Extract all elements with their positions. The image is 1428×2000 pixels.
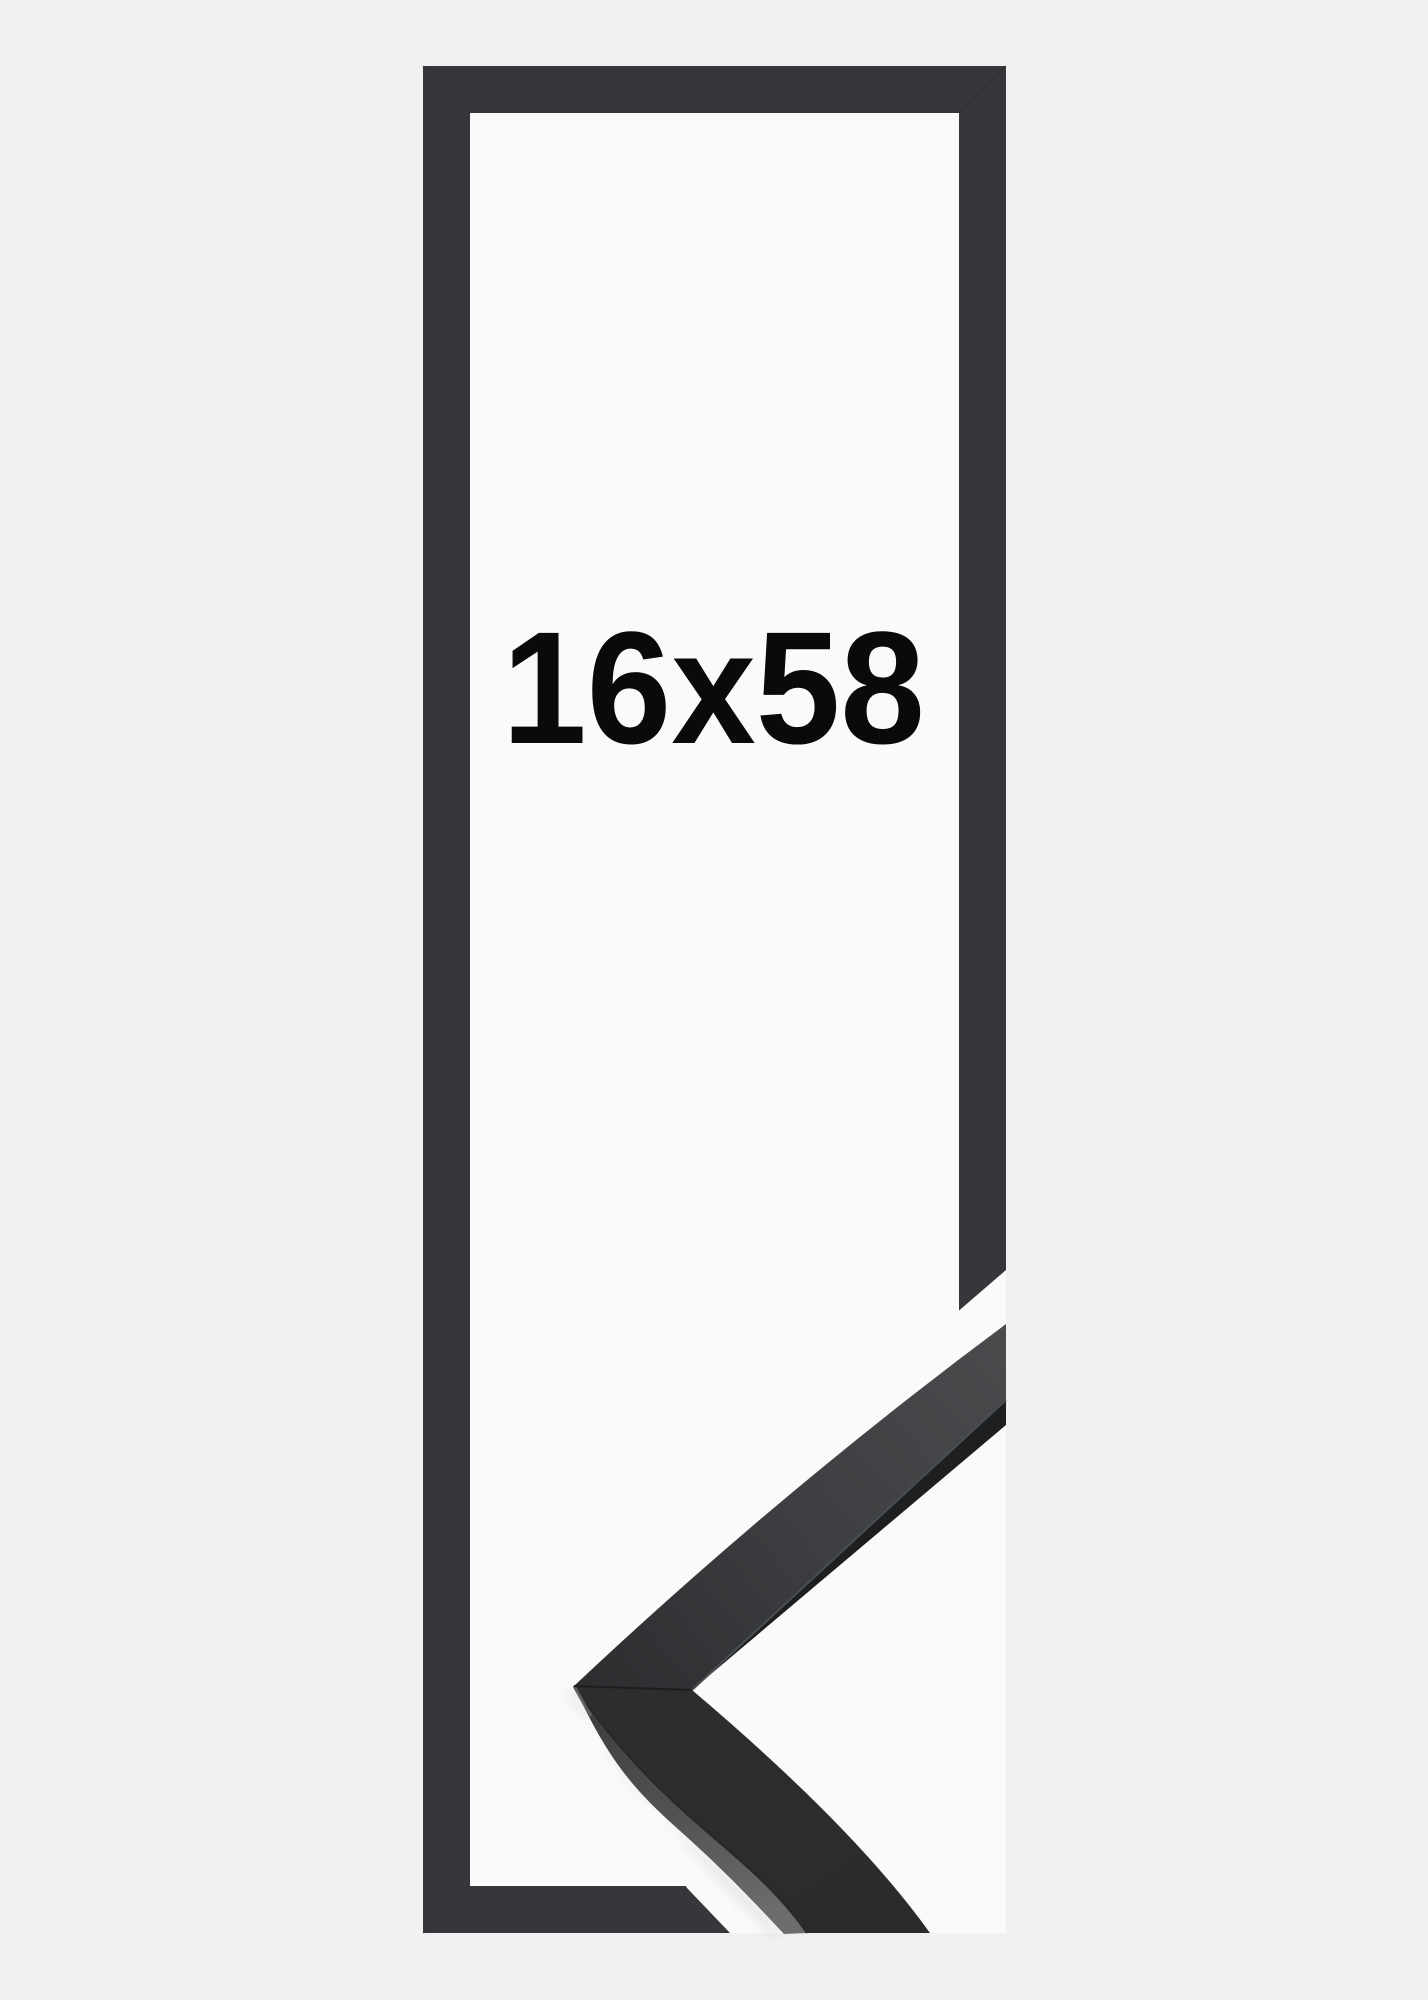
svg-text:16x58: 16x58 — [502, 599, 925, 777]
